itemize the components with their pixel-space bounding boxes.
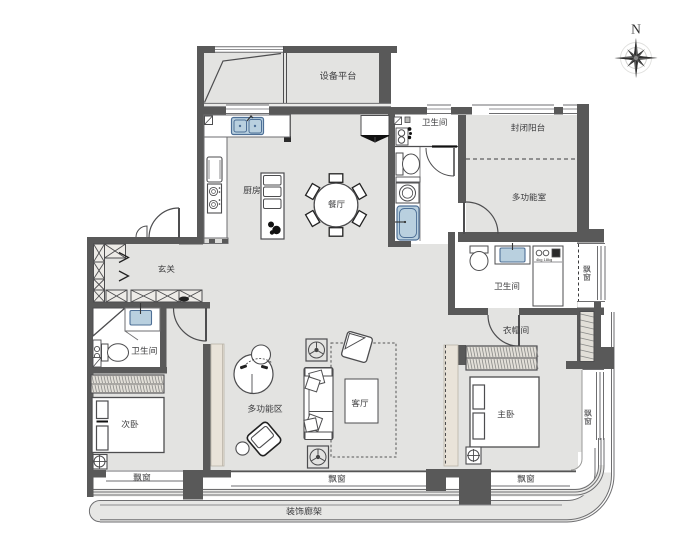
svg-text:N: N bbox=[631, 22, 641, 37]
svg-text:4kg 18kg: 4kg 18kg bbox=[536, 257, 552, 262]
